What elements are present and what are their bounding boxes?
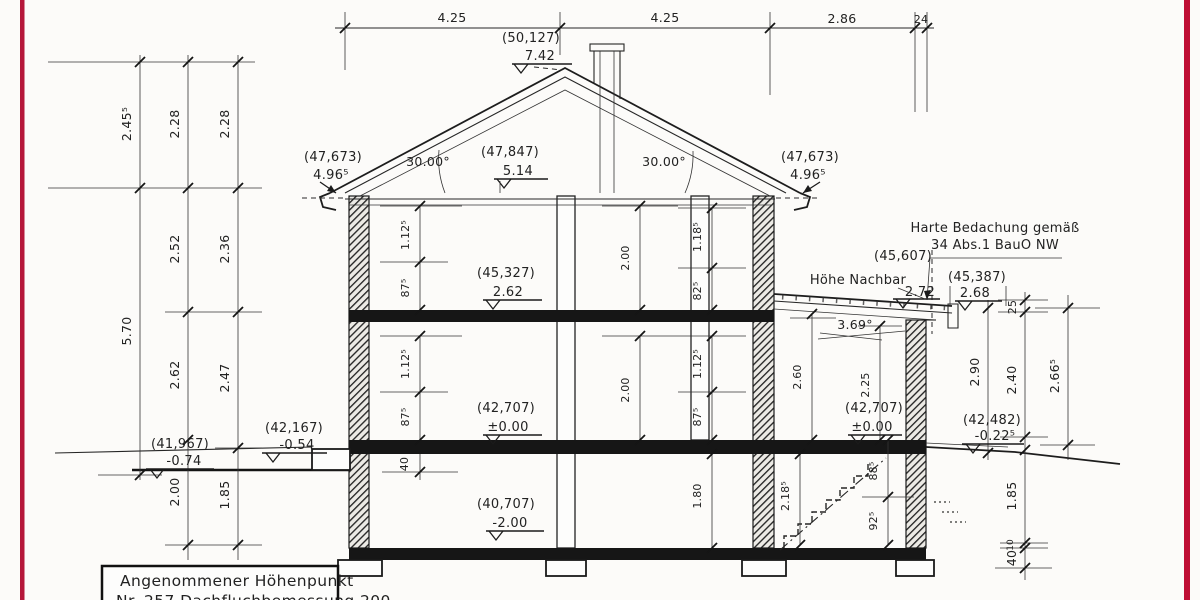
- scanned-plan-sheet: 4.25 4.25 2.86 24 2.45⁵ 5.70 2.28 2.52 2…: [0, 0, 1200, 600]
- level-absolute: (40,707): [477, 497, 535, 512]
- dimension-label: 2.36: [217, 234, 232, 263]
- level-relative: -0.54: [279, 438, 314, 453]
- slope-mark-lines: [818, 331, 905, 340]
- level-relative: 2.62: [493, 285, 523, 300]
- dimension-label: 87⁵: [399, 407, 412, 426]
- dimension-label: 2.47: [217, 363, 232, 392]
- dimension-label: 2.00: [619, 377, 632, 402]
- dimension-label: 82⁵: [691, 281, 704, 300]
- level-absolute: (50,127): [502, 31, 560, 46]
- dimension-label: 2.28: [217, 109, 232, 138]
- right-border-rule: [1184, 0, 1190, 600]
- level-relative: 4.96⁵: [790, 168, 826, 183]
- footing: [742, 560, 786, 576]
- level-absolute: (42,707): [845, 401, 903, 416]
- dimension-label: 1.80: [691, 483, 704, 508]
- dimension-label: 4.25: [437, 10, 466, 25]
- chimney-cap: [590, 44, 624, 51]
- level-relative: -2.00: [492, 516, 527, 531]
- interior-dimension-chains: 1.12⁵ 87⁵ 2.00 1.18⁵ 82⁵ 1.12⁵ 87⁵ 2.00 …: [380, 201, 914, 553]
- level-absolute: (42,167): [265, 421, 323, 436]
- level-relative: 7.42: [525, 49, 555, 64]
- dimension-label: 4.25: [650, 10, 679, 25]
- level-absolute: (47,673): [304, 150, 362, 165]
- level-absolute: (45,607): [874, 249, 932, 264]
- annex-slope-label: 3.69°: [837, 317, 873, 332]
- annex-fascia: [948, 304, 958, 328]
- rafter-underside-line: [360, 90, 770, 196]
- left-exterior-wall: [349, 196, 369, 548]
- dimension-label: 2.90: [967, 357, 982, 386]
- level-relative: 4.96⁵: [313, 168, 349, 183]
- right-exterior-wall: [753, 196, 774, 548]
- level-relative: 2.68: [960, 286, 990, 301]
- dimension-label: 2.28: [167, 109, 182, 138]
- title-box-line2: Nr. 257 Dachfluchbemessung 200: [116, 592, 391, 600]
- roofing-note-line2: 34 Abs.1 BauO NW: [931, 238, 1059, 253]
- dimension-label: 2.25: [859, 372, 872, 397]
- dimension-label: 2.45⁵: [119, 107, 134, 141]
- level-absolute: (41,967): [151, 437, 209, 452]
- dimension-label: 1.12⁵: [399, 349, 412, 379]
- level-absolute: (47,847): [481, 145, 539, 160]
- footing: [546, 560, 586, 576]
- dimension-label: 2.40: [1004, 365, 1019, 394]
- level-absolute: (42,707): [477, 401, 535, 416]
- level-absolute: (47,673): [781, 150, 839, 165]
- level-absolute: (42,482): [963, 413, 1021, 428]
- dimension-label: 88⁵: [867, 461, 880, 480]
- dimension-label: 2.00: [167, 477, 182, 506]
- dimension-label: 10: [1006, 539, 1016, 551]
- dimension-label: 1.85: [1004, 481, 1019, 510]
- outside-steps-dotted: [934, 502, 966, 522]
- dimension-label: 1.12⁵: [691, 349, 704, 379]
- dimension-label: 2.62: [167, 360, 182, 389]
- dimension-label: 1.18⁵: [691, 222, 704, 252]
- level-relative: -0.74: [166, 454, 201, 469]
- dimension-label: 1.85: [217, 480, 232, 509]
- gutter-left: [320, 193, 336, 210]
- arrowhead: [327, 185, 336, 193]
- dimension-label: 1.12⁵: [399, 220, 412, 250]
- level-relative: -0.22⁵: [975, 429, 1016, 444]
- basement-slab: [349, 548, 926, 560]
- chimney: [590, 44, 624, 193]
- title-box-line1: Angenommener Höhenpunkt: [120, 572, 354, 590]
- level-leader-dashes: [302, 67, 820, 198]
- level-relative: ±0.00: [851, 420, 892, 435]
- roofing-note-line1: Harte Bedachung gemäß: [910, 221, 1079, 236]
- top-dimension-chain: 4.25 4.25 2.86 24: [335, 10, 934, 112]
- level-relative: ±0.00: [487, 420, 528, 435]
- level-underlines: [146, 64, 1024, 531]
- notes: Höhe Nachbar Harte Bedachung gemäß 34 Ab…: [810, 221, 1080, 340]
- roof-angle-label: 30.00°: [642, 154, 686, 169]
- dimension-label: 5.70: [119, 316, 134, 345]
- roof-angle-arc-right: [685, 151, 693, 193]
- dimension-label: 40: [398, 457, 411, 471]
- left-border-rule: [20, 0, 25, 600]
- dimension-label: 87⁵: [691, 407, 704, 426]
- dimension-label: 92⁵: [867, 511, 880, 530]
- witness-lines: [345, 12, 927, 112]
- level-relative: 5.14: [503, 164, 533, 179]
- dimension-label: 24: [914, 13, 928, 26]
- level-absolute: (45,327): [477, 266, 535, 281]
- terrain-right-lower: [926, 447, 1120, 464]
- dimension-label: 87⁵: [399, 278, 412, 297]
- roof-outer-line: [330, 68, 800, 193]
- left-dimension-chains: 2.45⁵ 5.70 2.28 2.52 2.62 2.00 2.28 2.36…: [48, 55, 262, 560]
- title-box: Angenommener Höhenpunkt Nr. 257 Dachfluc…: [102, 566, 391, 600]
- entrance-step: [312, 449, 350, 470]
- dimension-label: 2.52: [167, 234, 182, 263]
- roof-angle-label: 30.00°: [406, 154, 450, 169]
- dimension-label: 2.60: [791, 364, 804, 389]
- dimension-label: 2.00: [619, 245, 632, 270]
- dimension-label: 2.86: [827, 11, 856, 26]
- dimension-label: 2.18⁵: [779, 481, 792, 511]
- building-section-drawing: 4.25 4.25 2.86 24 2.45⁵ 5.70 2.28 2.52 2…: [0, 0, 1200, 600]
- dimension-label: 40: [1004, 550, 1019, 567]
- dimension-label: 25: [1006, 300, 1019, 314]
- walls-and-floors: [338, 196, 934, 576]
- arrowhead: [803, 185, 812, 193]
- annex-right-wall: [906, 320, 926, 548]
- roof-structure: [320, 68, 810, 210]
- level-absolute: (45,387): [948, 270, 1006, 285]
- gutter-right: [794, 193, 810, 210]
- neighbor-height-label: Höhe Nachbar: [810, 273, 907, 288]
- dimension-label: 2.66⁵: [1047, 359, 1062, 393]
- roof-inner-line: [345, 77, 786, 193]
- footing: [896, 560, 934, 576]
- interior-wall-left: [557, 196, 575, 548]
